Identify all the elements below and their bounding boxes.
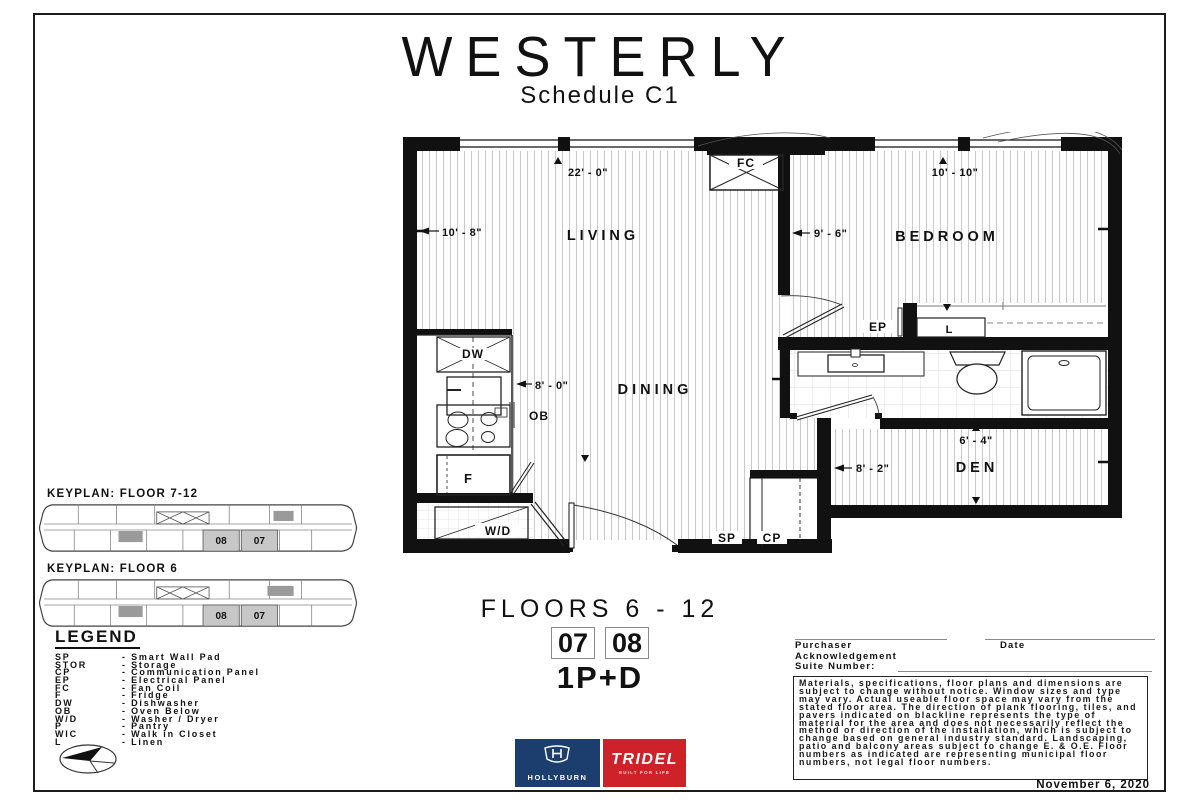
keyplan-unit-07-label: 07 [254,611,266,622]
purchaser-acknowledgement-label: Purchaser Acknowledgement [795,641,897,662]
keyplan-floor-7-12: 08 07 [38,502,358,554]
legend: LEGEND SP- Smart Wall Pad STOR- Storage … [55,627,335,745]
legend-item: WIC- Walk in Closet [55,730,335,738]
legend-item: W/D- Washer / Dryer [55,715,335,723]
builder-logos: HOLLYBURN TRIDEL BUILT FOR LIFE [515,739,686,787]
hollyburn-shield-icon [515,739,600,773]
issue-date: November 6, 2020 [1000,779,1150,791]
core-block [119,531,143,542]
north-arrow-icon [58,743,118,775]
legend-item: SP- Smart Wall Pad [55,653,335,661]
tag-dishwasher: DW [462,347,484,361]
tag-fan-coil: FC [737,156,755,170]
tridel-logo: TRIDEL BUILT FOR LIFE [603,739,686,787]
tridel-tagline: BUILT FOR LIFE [603,770,686,775]
keyplan-unit-08-label: 08 [216,536,228,547]
dim-bedroom-depth: 9' - 6" [814,228,847,240]
suite-number-label: Suite Number: [795,662,876,673]
floorplan-drawing: 22' - 0" 10' - 10" 10' - 8" LIVING 9' - … [398,132,1128,557]
dim-bedroom-width: 10' - 10" [932,167,979,179]
toilet-tank [950,352,1005,365]
keyplan-unit-08-label: 08 [216,611,228,622]
plan-type: 1P+D [440,660,760,696]
hollyburn-name: HOLLYBURN [515,773,600,782]
schedule-subtitle: Schedule C1 [0,82,1200,110]
dim-den-width: 8' - 2" [856,463,889,475]
tag-fridge: F [464,471,472,486]
core-block [273,511,293,521]
dim-living-depth: 10' - 8" [442,227,482,239]
floorplan-sheet: WESTERLY Schedule C1 [0,0,1200,805]
keyplan-title-floor-7-12: KEYPLAN: FLOOR 7-12 [47,488,198,500]
tag-smart-wall-pad: SP [718,531,736,545]
tridel-name: TRIDEL [603,751,686,769]
brand-title: WESTERLY [0,24,1200,89]
tag-linen: L [946,324,953,336]
unit-number-07: 07 [551,627,595,659]
keyplan-unit-07-label: 07 [254,536,266,547]
electrical-panel [898,308,902,336]
dim-kitchen-width: 8' - 0" [535,380,568,392]
suite-number-line [898,671,1152,672]
legend-title: LEGEND [55,627,140,649]
core-block [267,586,293,596]
room-den: DEN [956,460,999,476]
keyplan-title-floor-6: KEYPLAN: FLOOR 6 [47,563,178,575]
core-block [119,606,143,617]
tag-washer-dryer: W/D [485,524,511,538]
dim-living-width: 22' - 0" [568,167,608,179]
toilet-bowl [957,364,997,394]
legend-item: EP- Electrical Panel [55,676,335,684]
disclaimer-box: Materials, specifications, floor plans a… [793,676,1148,780]
unit-number-08: 08 [605,627,649,659]
room-dining: DINING [618,382,693,398]
faucet [851,349,860,357]
keyplan-floor-6: 08 07 [38,577,358,629]
suite-summary: FLOORS 6 - 12 0708 1P+D [440,595,760,696]
legend-item: FC- Fan Coil [55,684,335,692]
tag-communication-panel: CP [763,531,782,545]
floors-range: FLOORS 6 - 12 [440,595,760,624]
disclaimer-text: Materials, specifications, floor plans a… [799,680,1142,767]
tag-oven-below: OB [529,409,549,423]
hollyburn-logo: HOLLYBURN [515,739,600,787]
unit-numbers: 0708 [440,627,760,659]
dim-den-depth: 6' - 4" [959,435,992,447]
date-label: Date [1000,641,1025,652]
room-living: LIVING [567,228,639,244]
room-bedroom: BEDROOM [895,229,999,245]
tag-electrical-panel: EP [869,320,887,334]
